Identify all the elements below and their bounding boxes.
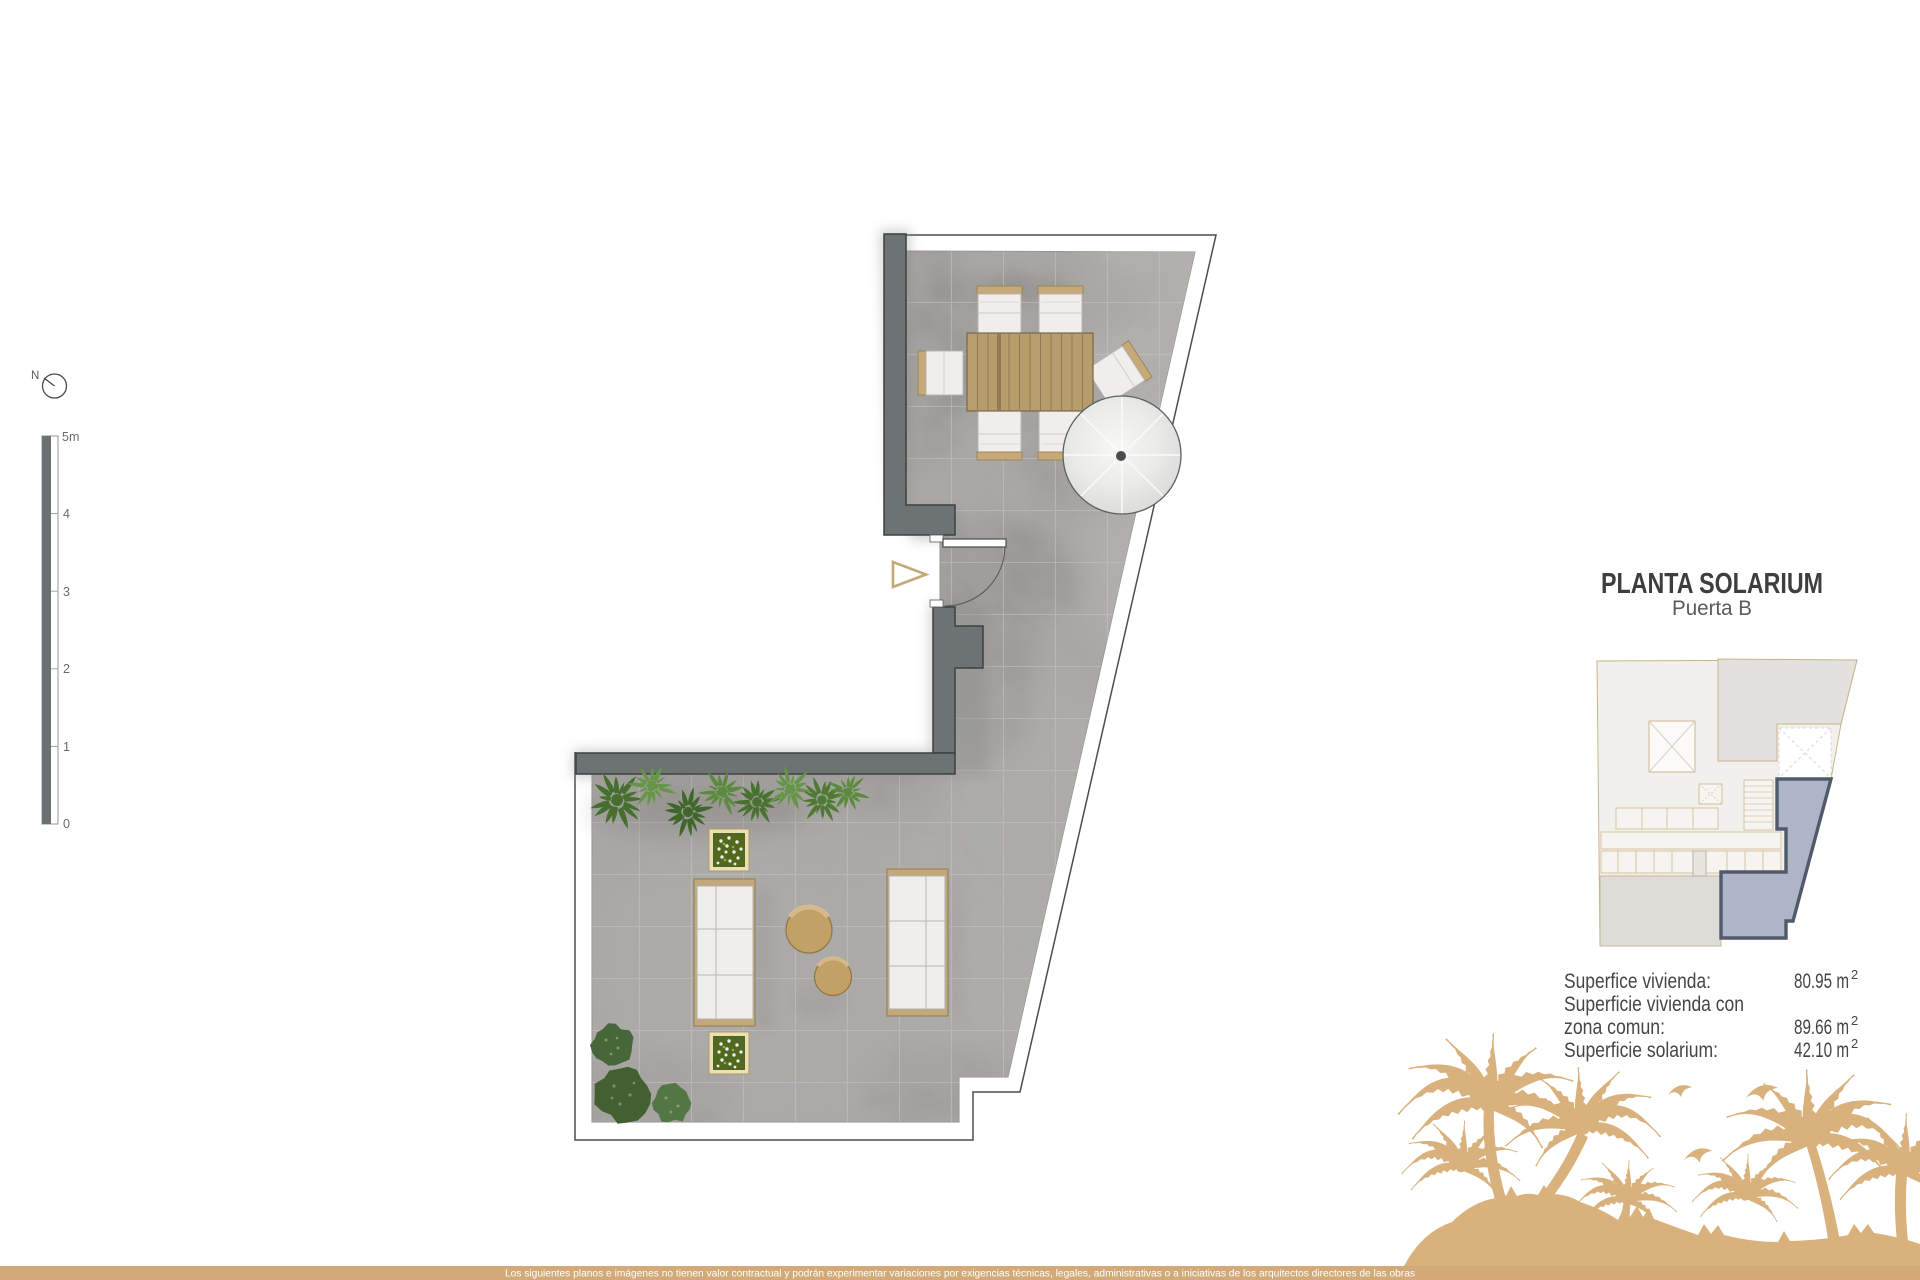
svg-text:42.10 m: 42.10 m: [1794, 1038, 1849, 1062]
svg-text:2: 2: [1851, 1013, 1858, 1028]
svg-text:Superficie solarium:: Superficie solarium:: [1564, 1038, 1718, 1062]
svg-text:PLANTA SOLARIUM: PLANTA SOLARIUM: [1601, 568, 1823, 600]
svg-text:zona comun:: zona comun:: [1564, 1015, 1665, 1039]
svg-text:5m: 5m: [62, 430, 79, 444]
svg-text:Los siguientes planos e imágen: Los siguientes planos e imágenes no tien…: [505, 1269, 1415, 1280]
svg-text:2: 2: [1851, 967, 1858, 982]
svg-text:3: 3: [63, 585, 70, 599]
svg-text:89.66 m: 89.66 m: [1794, 1015, 1849, 1039]
svg-text:Superfice vivienda:: Superfice vivienda:: [1564, 969, 1711, 993]
svg-text:Puerta B: Puerta B: [1672, 597, 1752, 620]
svg-text:2: 2: [63, 662, 70, 676]
svg-text:80.95 m: 80.95 m: [1794, 969, 1849, 993]
svg-text:1: 1: [63, 740, 70, 754]
svg-text:2: 2: [1851, 1036, 1858, 1051]
svg-text:4: 4: [63, 507, 70, 521]
svg-text:N: N: [31, 370, 39, 382]
svg-text:0: 0: [63, 817, 70, 831]
svg-text:Superficie vivienda con: Superficie vivienda con: [1564, 992, 1744, 1016]
